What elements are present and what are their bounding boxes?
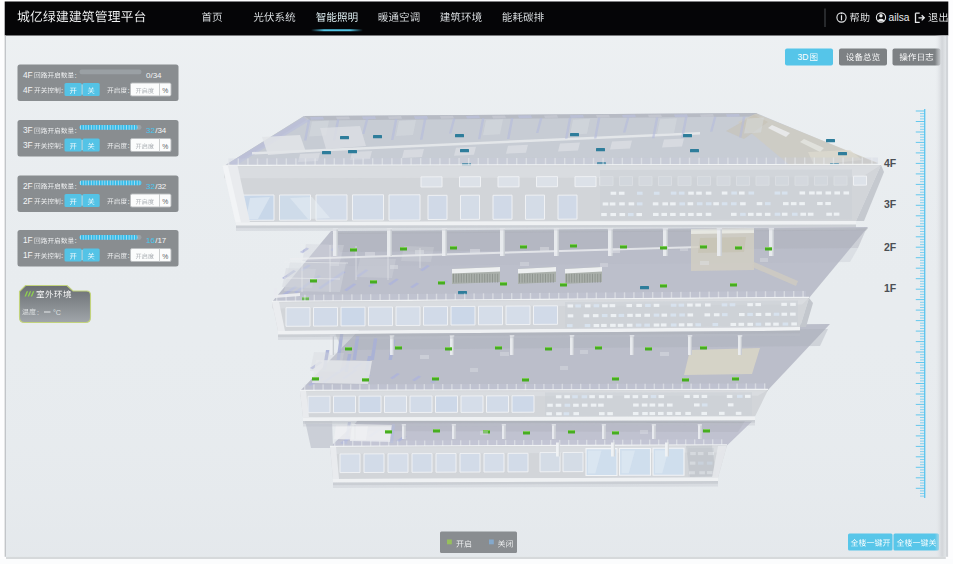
svg-text:2F: 2F xyxy=(23,196,33,206)
svg-text:3F: 3F xyxy=(23,140,33,150)
svg-text::: : xyxy=(37,309,39,316)
svg-text:/32: /32 xyxy=(155,182,167,191)
svg-text:%: % xyxy=(162,253,168,260)
svg-text::: : xyxy=(75,236,77,245)
svg-text::: : xyxy=(75,126,77,135)
svg-text:3F: 3F xyxy=(884,198,897,210)
svg-text:°C: °C xyxy=(53,308,61,317)
svg-text:1F: 1F xyxy=(884,282,897,294)
svg-text:2F: 2F xyxy=(884,241,897,253)
svg-text::: : xyxy=(75,182,77,191)
svg-text:/17: /17 xyxy=(155,236,167,245)
svg-text::: : xyxy=(127,141,129,150)
svg-text:32: 32 xyxy=(146,126,155,135)
svg-text:/34: /34 xyxy=(155,126,167,135)
svg-text:0/34: 0/34 xyxy=(146,71,162,80)
svg-text:4F: 4F xyxy=(23,85,33,95)
svg-text:1F: 1F xyxy=(23,235,33,245)
svg-text:3D: 3D xyxy=(798,52,809,62)
svg-text:%: % xyxy=(162,198,168,205)
svg-text::: : xyxy=(61,86,63,95)
svg-text:1F: 1F xyxy=(23,250,33,260)
svg-text:ailsa: ailsa xyxy=(889,12,910,23)
svg-text::: : xyxy=(127,86,129,95)
svg-text:%: % xyxy=(162,87,168,94)
svg-text:4F: 4F xyxy=(884,157,897,169)
svg-text::: : xyxy=(75,71,77,80)
svg-text:3F: 3F xyxy=(23,125,33,135)
svg-text:2F: 2F xyxy=(23,181,33,191)
svg-text:16: 16 xyxy=(146,236,155,245)
svg-text::: : xyxy=(61,197,63,206)
svg-text:%: % xyxy=(162,143,168,150)
svg-text::: : xyxy=(61,141,63,150)
svg-text:32: 32 xyxy=(146,182,155,191)
svg-text::: : xyxy=(127,251,129,260)
svg-text::: : xyxy=(127,197,129,206)
svg-text::: : xyxy=(61,251,63,260)
svg-text:4F: 4F xyxy=(23,70,33,80)
